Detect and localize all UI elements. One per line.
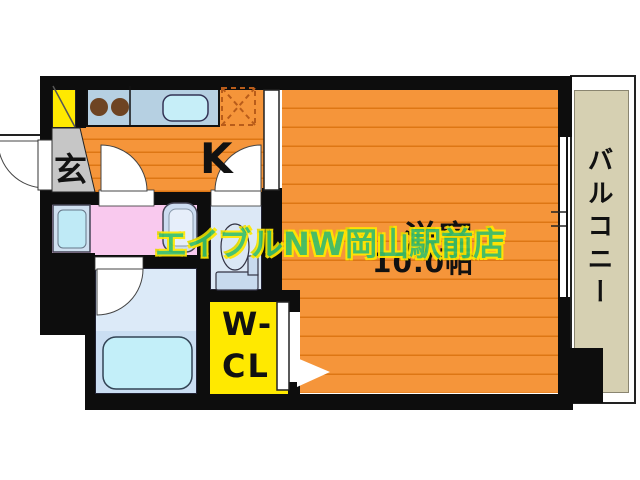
bathtub (103, 337, 192, 389)
washing-machine-inner (58, 210, 86, 248)
shoe-cabinet-diagonal (53, 86, 75, 127)
refrigerator-space (222, 88, 255, 125)
washroom-door-opening (99, 190, 154, 206)
toilet-door-opening (211, 190, 261, 206)
closet-label-line2: CL (222, 350, 270, 382)
kitchen-sink (163, 95, 208, 121)
bathroom-door-swing (97, 269, 143, 315)
kitchen-label: K (200, 138, 233, 180)
closet-direction-arrow (297, 358, 330, 387)
stove-burner-icon (90, 98, 108, 116)
entrance-door-leaf (38, 140, 52, 190)
bathroom-door-leaf (95, 257, 143, 270)
balcony-label: バルコニー (585, 146, 611, 346)
genkan-label: 玄 (54, 153, 87, 186)
closet-label-line1: W- (222, 308, 273, 340)
room-sliding-door (264, 90, 279, 190)
washroom-door-swing (101, 145, 147, 191)
closet-sliding-door (277, 302, 289, 390)
stove-burner-icon (111, 98, 129, 116)
watermark-text: エイブルNW岡山駅前店 (155, 219, 505, 265)
floor-plan: 玄 K 洋室 10.0帖 W- CL バルコニー エイブルNW岡山駅前店 (0, 0, 640, 480)
